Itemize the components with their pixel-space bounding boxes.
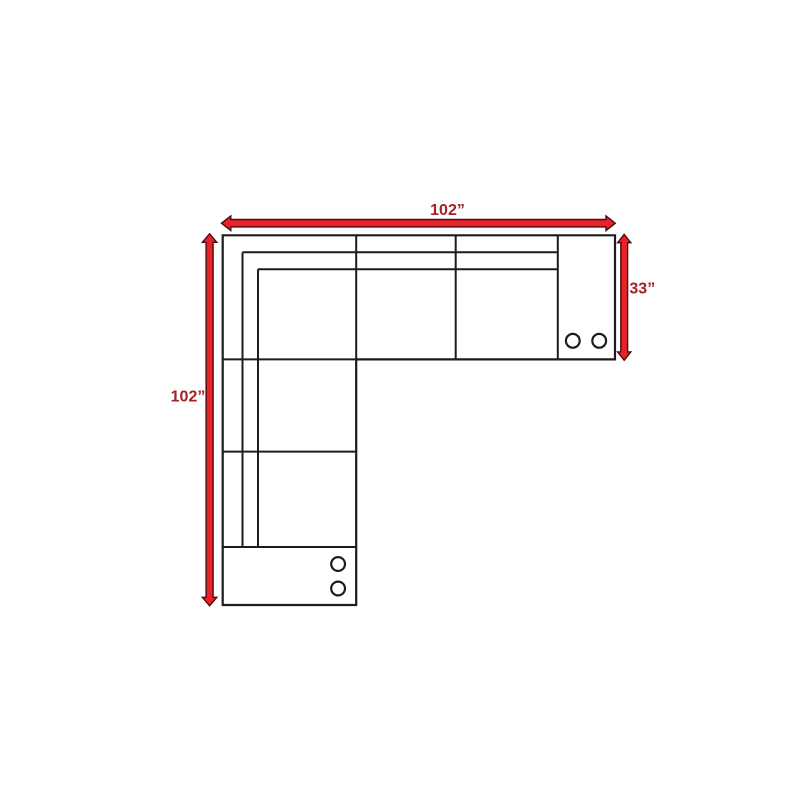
svg-text:102”: 102” (430, 202, 465, 219)
svg-text:33”: 33” (629, 281, 655, 298)
svg-text:102”: 102” (171, 389, 206, 406)
